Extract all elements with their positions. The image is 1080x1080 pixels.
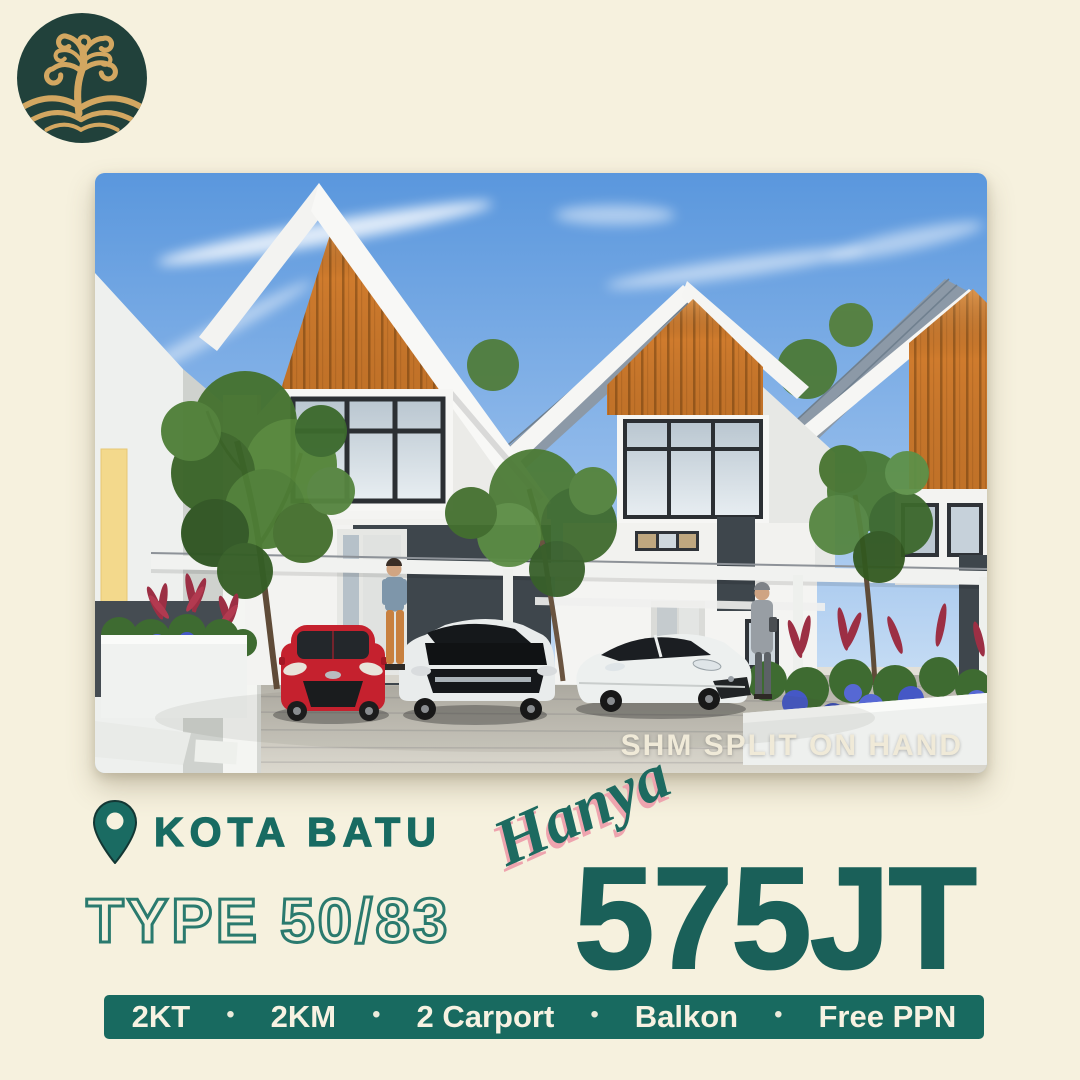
feature-separator: •	[372, 1001, 380, 1029]
property-photo: SHM SPLIT ON HAND	[95, 173, 987, 773]
feature-item: 2KT	[132, 999, 191, 1035]
feature-item: 2 Carport	[417, 999, 555, 1035]
brand-logo	[16, 12, 148, 144]
location-pin-icon	[92, 800, 138, 864]
location-label: KOTA BATU	[154, 809, 442, 856]
feature-item: Balkon	[635, 999, 738, 1035]
feature-separator: •	[590, 1001, 598, 1029]
price-value: 575JT	[490, 846, 975, 991]
location-row: KOTA BATU	[92, 800, 442, 864]
type-label: TYPE 50/83	[86, 886, 450, 957]
flyer: SHM SPLIT ON HAND KOTA BATU TYPE 50/83 H…	[0, 0, 1080, 1080]
feature-item: 2KM	[271, 999, 336, 1035]
feature-separator: •	[226, 1001, 234, 1029]
house-render-illustration	[95, 173, 987, 773]
feature-item: Free PPN	[818, 999, 956, 1035]
feature-separator: •	[774, 1001, 782, 1029]
features-bar: 2KT • 2KM • 2 Carport • Balkon • Free PP…	[104, 995, 984, 1039]
